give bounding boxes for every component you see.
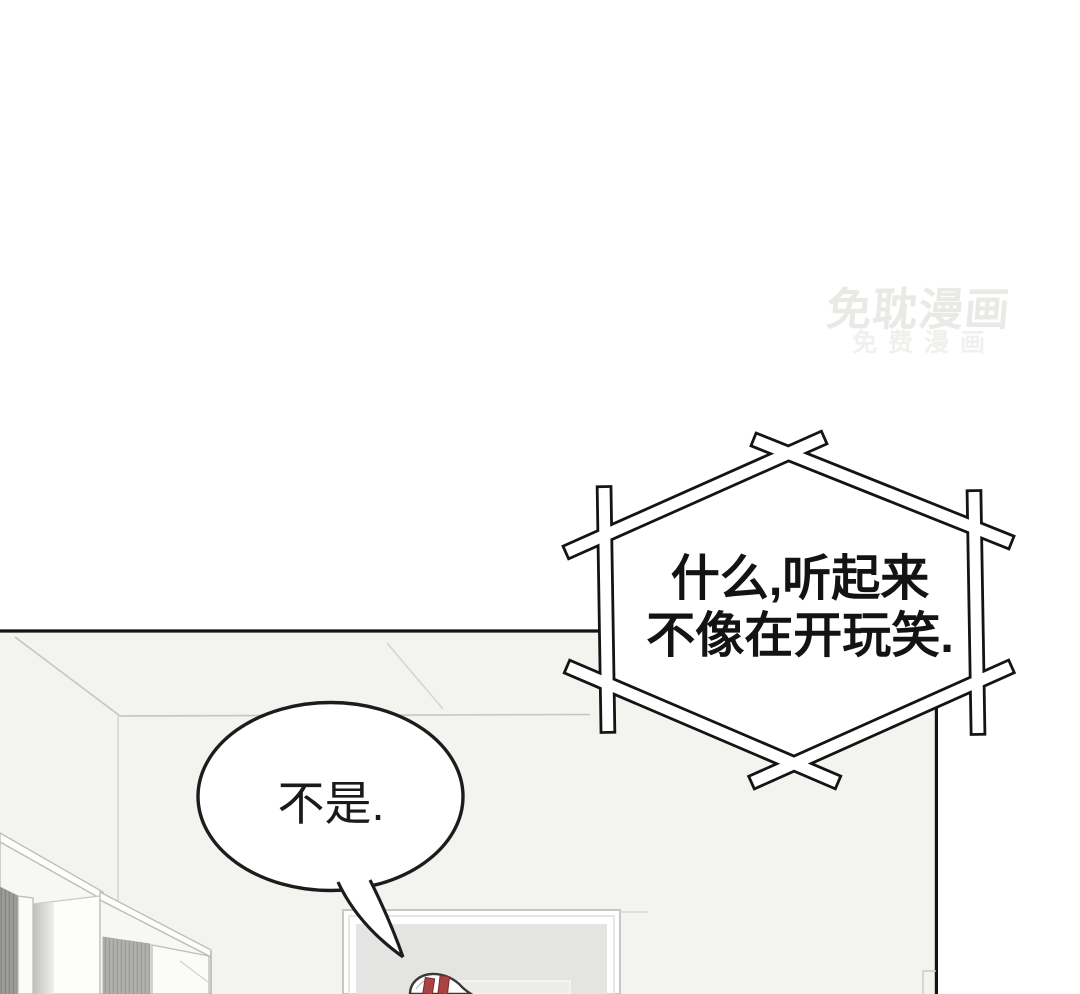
comic-art [0,0,1080,994]
wardrobe-left-side-strip [18,896,33,994]
red-stripe-2 [438,976,450,994]
shout-bubble-line1: 什么,听起来 [604,551,996,608]
red-stripe-1 [423,977,435,994]
wardrobe-left-opening-shadow [33,902,54,994]
shout-bubble-text: 什么,听起来 不像在开玩笑. [604,551,996,665]
watermark-line2: 免费漫画 [852,323,996,359]
frame-inner-reflection [458,981,570,994]
reply-bubble-text: 不是. [231,779,431,829]
comic-page: 免耽漫画 免费漫画 什么,听起来 不像在开玩笑. 不是. [0,0,1080,994]
wardrobe-right-open-door-dark [103,937,150,994]
wardrobe-left-open-door-dark [0,887,18,994]
shout-bubble-line2: 不像在开玩笑. [604,608,996,665]
